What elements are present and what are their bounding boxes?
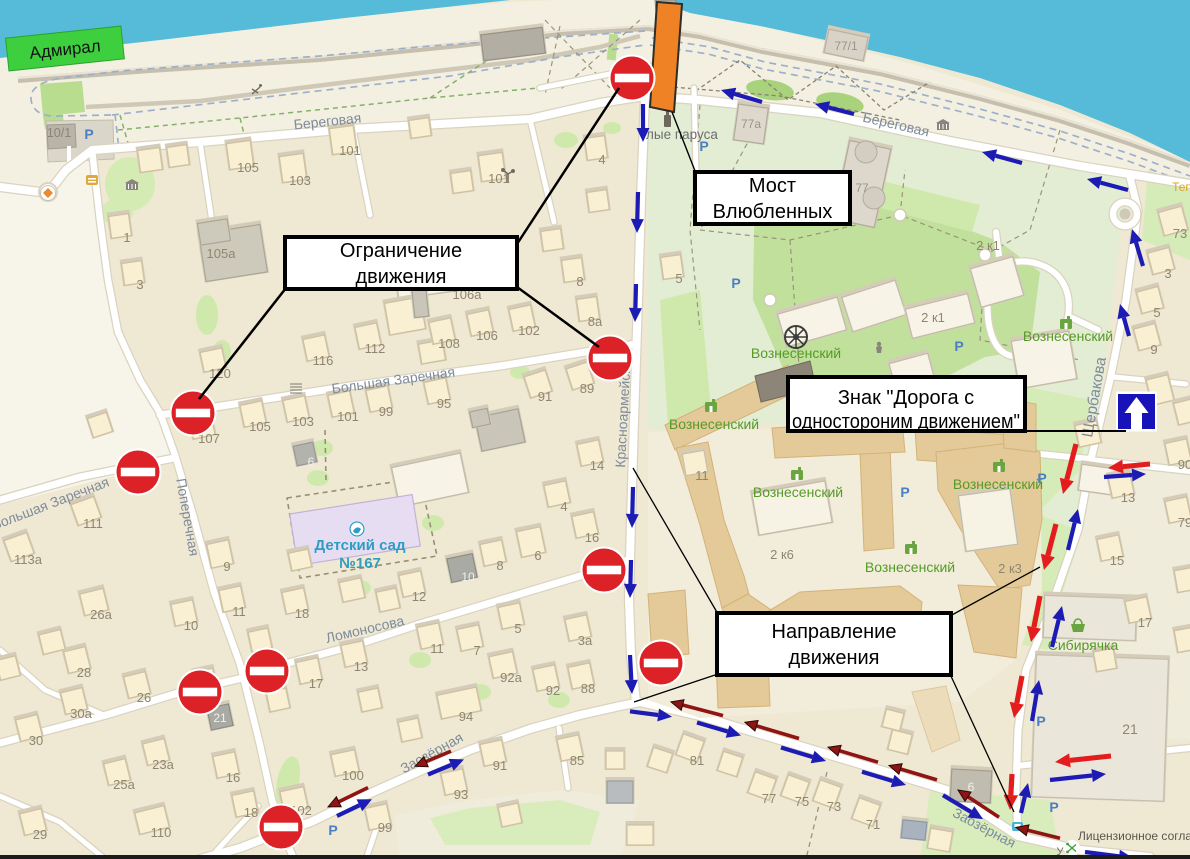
svg-text:30а: 30а <box>70 706 92 721</box>
svg-text:17: 17 <box>1138 615 1152 630</box>
svg-text:116: 116 <box>313 353 334 368</box>
svg-text:108: 108 <box>438 336 460 351</box>
svg-text:105а: 105а <box>207 246 237 261</box>
svg-text:Вознесенский: Вознесенский <box>669 416 759 432</box>
svg-text:91: 91 <box>538 389 552 404</box>
svg-text:99: 99 <box>378 820 392 835</box>
svg-text:7: 7 <box>473 643 480 658</box>
svg-text:95: 95 <box>437 396 451 411</box>
svg-text:4: 4 <box>560 499 567 514</box>
svg-text:103: 103 <box>289 173 311 188</box>
svg-text:Сибирячка: Сибирячка <box>1048 637 1119 653</box>
svg-text:11: 11 <box>232 604 246 619</box>
svg-text:91: 91 <box>493 758 507 773</box>
svg-text:8а: 8а <box>588 314 603 329</box>
svg-text:Знак "Дорога с: Знак "Дорога с <box>838 387 974 409</box>
svg-text:Теп: Теп <box>1172 180 1190 194</box>
svg-text:26: 26 <box>137 690 151 705</box>
svg-text:16: 16 <box>226 770 240 785</box>
svg-text:75: 75 <box>795 794 809 809</box>
svg-text:Р: Р <box>328 822 337 838</box>
svg-text:101: 101 <box>339 143 361 158</box>
svg-text:105: 105 <box>237 160 259 175</box>
svg-text:6: 6 <box>534 548 541 563</box>
svg-text:92: 92 <box>546 683 560 698</box>
svg-text:26а: 26а <box>90 607 112 622</box>
svg-text:Направление: Направление <box>772 621 897 643</box>
svg-text:18: 18 <box>244 805 258 820</box>
svg-text:85: 85 <box>570 753 584 768</box>
svg-text:11: 11 <box>430 641 444 656</box>
svg-text:5: 5 <box>675 271 682 286</box>
svg-text:4: 4 <box>598 152 605 167</box>
svg-text:102: 102 <box>518 323 540 338</box>
svg-text:92а: 92а <box>500 670 522 685</box>
svg-text:12: 12 <box>412 589 426 604</box>
svg-text:10: 10 <box>184 618 198 633</box>
svg-text:21: 21 <box>213 711 227 725</box>
svg-text:5: 5 <box>1153 305 1160 320</box>
svg-text:3: 3 <box>136 277 143 292</box>
svg-text:17: 17 <box>309 676 323 691</box>
svg-text:№167: №167 <box>339 555 381 572</box>
svg-text:Мост: Мост <box>749 175 796 197</box>
svg-text:8: 8 <box>576 274 583 289</box>
svg-text:71: 71 <box>866 817 880 832</box>
svg-text:89: 89 <box>580 381 594 396</box>
svg-text:30: 30 <box>29 733 43 748</box>
svg-text:106: 106 <box>476 328 498 343</box>
svg-text:112: 112 <box>365 341 386 356</box>
svg-text:14: 14 <box>590 458 604 473</box>
svg-text:2 к1: 2 к1 <box>976 238 1000 253</box>
svg-text:9: 9 <box>223 559 230 574</box>
svg-text:100: 100 <box>342 768 364 783</box>
svg-text:88: 88 <box>581 681 595 696</box>
svg-text:90: 90 <box>1178 457 1190 472</box>
svg-text:101: 101 <box>337 409 359 424</box>
svg-text:Детский сад: Детский сад <box>314 537 405 554</box>
svg-text:Вознесенский: Вознесенский <box>753 484 843 500</box>
svg-text:99: 99 <box>379 404 393 419</box>
svg-text:3: 3 <box>1164 266 1171 281</box>
svg-text:13: 13 <box>354 659 368 674</box>
svg-text:Вознесенский: Вознесенский <box>865 559 955 575</box>
svg-text:15: 15 <box>1110 553 1124 568</box>
svg-text:одностороним движением": одностороним движением" <box>792 411 1020 433</box>
svg-text:110: 110 <box>151 825 172 840</box>
svg-text:8: 8 <box>496 558 503 573</box>
svg-text:Влюбленных: Влюбленных <box>713 201 833 223</box>
svg-text:77: 77 <box>855 181 869 195</box>
svg-text:Р: Р <box>1049 799 1058 815</box>
svg-text:Р: Р <box>699 138 708 154</box>
svg-text:111: 111 <box>83 516 103 531</box>
svg-text:Р: Р <box>954 338 963 354</box>
svg-text:93: 93 <box>454 787 468 802</box>
svg-text:движения: движения <box>355 266 446 288</box>
svg-text:2 к3: 2 к3 <box>998 561 1022 576</box>
svg-text:Р: Р <box>84 126 93 142</box>
svg-text:25а: 25а <box>113 777 135 792</box>
svg-text:3а: 3а <box>578 633 593 648</box>
svg-text:21: 21 <box>1122 721 1138 737</box>
svg-text:77/1: 77/1 <box>834 39 858 53</box>
svg-text:77: 77 <box>762 791 776 806</box>
svg-text:10: 10 <box>461 570 475 584</box>
svg-text:Ограничение: Ограничение <box>340 240 462 262</box>
svg-text:94: 94 <box>459 709 473 724</box>
svg-text:29: 29 <box>33 827 47 842</box>
svg-text:73: 73 <box>827 799 841 814</box>
svg-text:11: 11 <box>695 468 709 483</box>
svg-text:103: 103 <box>292 414 314 429</box>
svg-text:13: 13 <box>1121 490 1135 505</box>
svg-text:движения: движения <box>788 647 879 669</box>
svg-text:77а: 77а <box>741 117 761 131</box>
svg-text:Вознесенский: Вознесенский <box>1023 328 1113 344</box>
svg-text:28: 28 <box>77 665 91 680</box>
svg-text:5: 5 <box>514 621 521 636</box>
svg-text:Лицензионное соглашени: Лицензионное соглашени <box>1078 829 1190 843</box>
svg-text:10/1: 10/1 <box>47 126 71 140</box>
svg-text:2 к1: 2 к1 <box>921 310 945 325</box>
svg-text:79: 79 <box>1178 515 1190 530</box>
svg-text:105: 105 <box>249 419 271 434</box>
svg-text:16: 16 <box>585 530 599 545</box>
svg-text:Р: Р <box>731 275 740 291</box>
svg-text:113а: 113а <box>14 552 43 567</box>
svg-text:Вознесенский: Вознесенский <box>953 476 1043 492</box>
svg-text:Р: Р <box>1036 713 1045 729</box>
svg-text:23а: 23а <box>152 757 174 772</box>
svg-text:2 к6: 2 к6 <box>770 547 794 562</box>
svg-text:Р: Р <box>900 484 909 500</box>
svg-text:6: 6 <box>308 455 315 469</box>
svg-text:1: 1 <box>123 230 130 245</box>
svg-text:73: 73 <box>1173 226 1187 241</box>
svg-text:81: 81 <box>690 753 704 768</box>
svg-text:18: 18 <box>295 606 309 621</box>
svg-text:9: 9 <box>1150 342 1157 357</box>
svg-text:Р: Р <box>1037 470 1046 486</box>
